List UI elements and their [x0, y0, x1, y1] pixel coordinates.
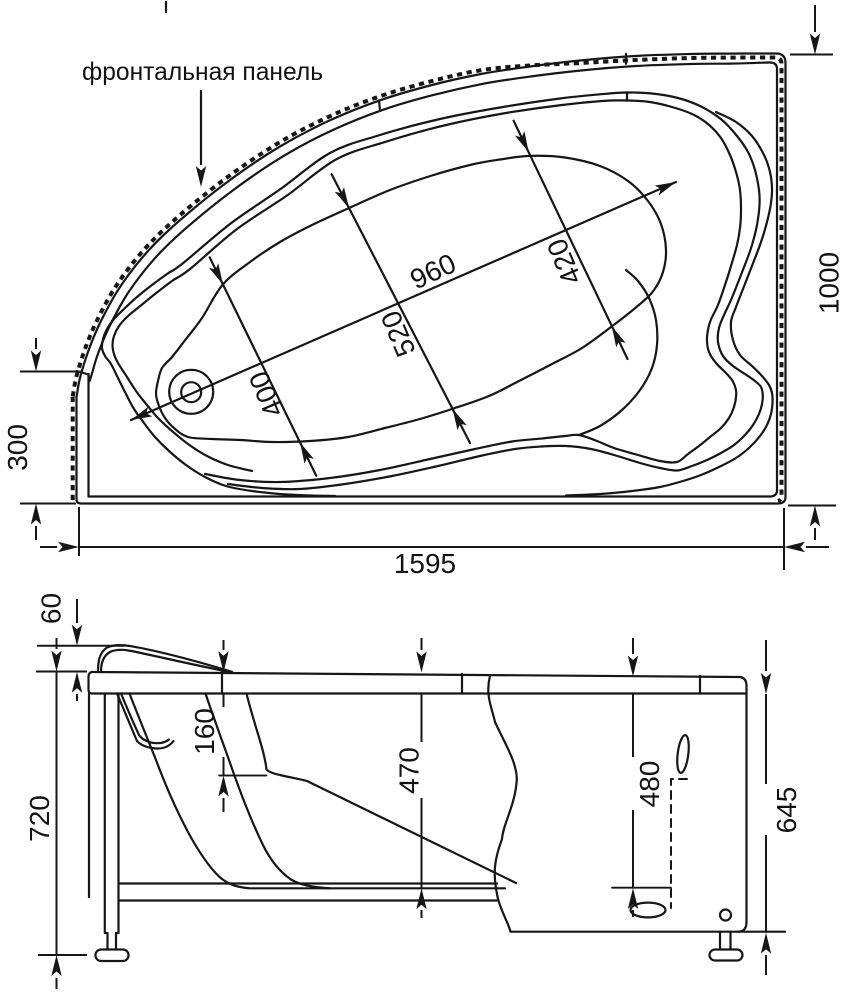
svg-text:720: 720 — [24, 795, 55, 842]
svg-text:160: 160 — [189, 708, 220, 755]
svg-text:1000: 1000 — [814, 252, 845, 314]
svg-text:520: 520 — [375, 306, 422, 361]
svg-text:фронтальная панель: фронтальная панель — [82, 59, 323, 86]
svg-text:960: 960 — [405, 247, 460, 295]
svg-text:1595: 1595 — [394, 548, 456, 579]
svg-text:300: 300 — [2, 424, 33, 471]
svg-text:470: 470 — [393, 747, 424, 794]
svg-text:645: 645 — [771, 787, 802, 834]
svg-text:480: 480 — [634, 761, 665, 808]
svg-text:400: 400 — [243, 367, 290, 422]
svg-text:60: 60 — [36, 593, 67, 624]
svg-text:420: 420 — [541, 234, 588, 289]
